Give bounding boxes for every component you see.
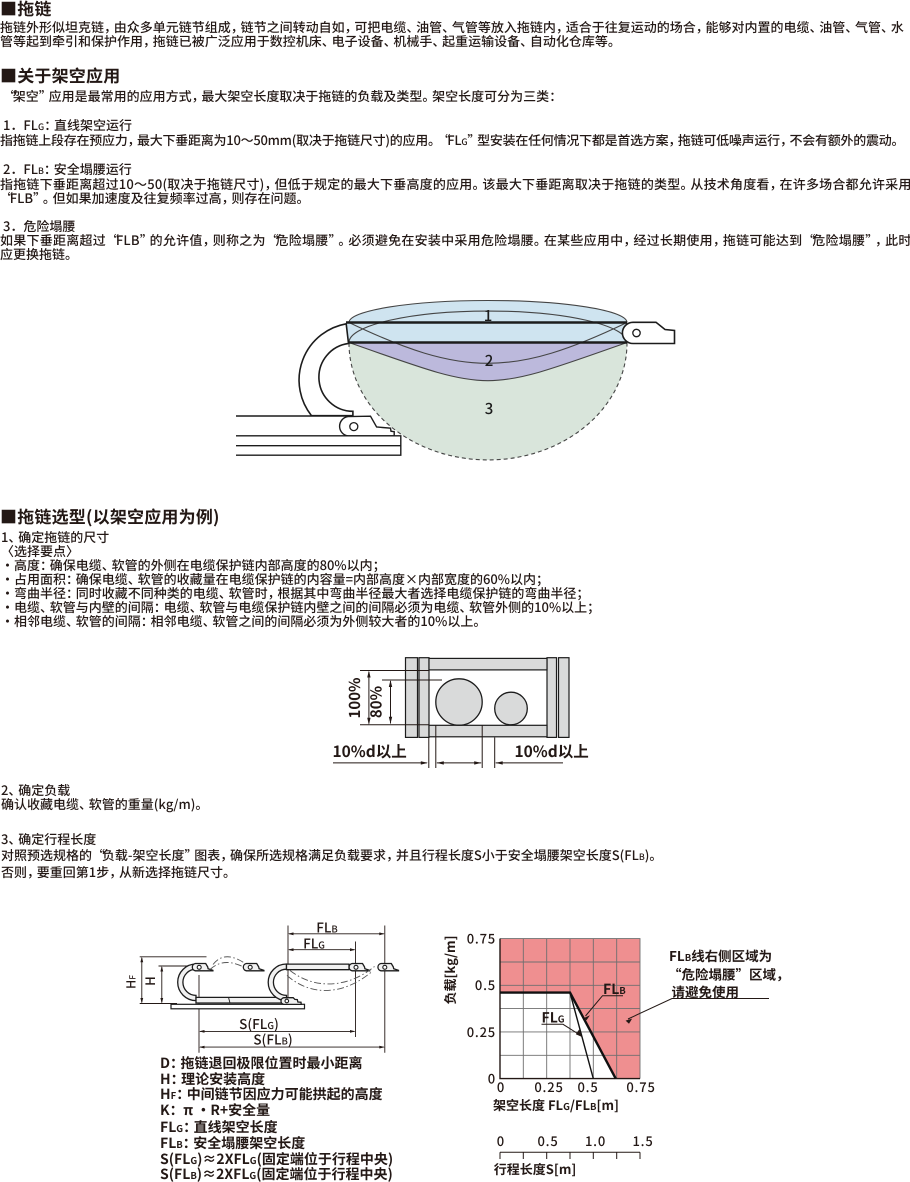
svg-text:0.75: 0.75: [467, 929, 496, 948]
svg-text:1.0: 1.0: [585, 1131, 606, 1150]
svg-text:H: H: [140, 976, 159, 986]
svg-text:0: 0: [497, 1077, 505, 1096]
svg-text:0.5: 0.5: [537, 1131, 558, 1150]
svg-text:3: 3: [485, 398, 494, 419]
svg-text:0: 0: [488, 1069, 496, 1088]
svg-text:0.5: 0.5: [475, 975, 496, 994]
svg-text:0.25: 0.25: [467, 1022, 496, 1041]
svg-text:80%: 80%: [366, 686, 387, 718]
svg-text:0: 0: [497, 1131, 505, 1150]
svg-text:10%d以上: 10%d以上: [333, 740, 407, 762]
svg-text:HF: HF: [121, 975, 140, 989]
svg-text:FLB线右侧区域为: FLB线右侧区域为: [669, 945, 772, 965]
svg-text:100%: 100%: [344, 678, 365, 719]
svg-text:负载[kg/m]: 负载[kg/m]: [440, 935, 459, 1004]
svg-text:0.25: 0.25: [534, 1077, 563, 1096]
svg-text:0.75: 0.75: [626, 1077, 655, 1096]
svg-text:0.5: 0.5: [577, 1077, 598, 1096]
svg-text:1: 1: [484, 305, 493, 326]
svg-text:行程长度S[m]: 行程长度S[m]: [494, 1159, 576, 1178]
svg-text:2: 2: [485, 350, 494, 371]
svg-text:架空长度 FLG/FLB[m]: 架空长度 FLG/FLB[m]: [493, 1095, 619, 1114]
svg-text:1.5: 1.5: [632, 1131, 653, 1150]
svg-text:10%d以上: 10%d以上: [515, 740, 589, 762]
svg-text:FLB: FLB: [316, 917, 338, 937]
